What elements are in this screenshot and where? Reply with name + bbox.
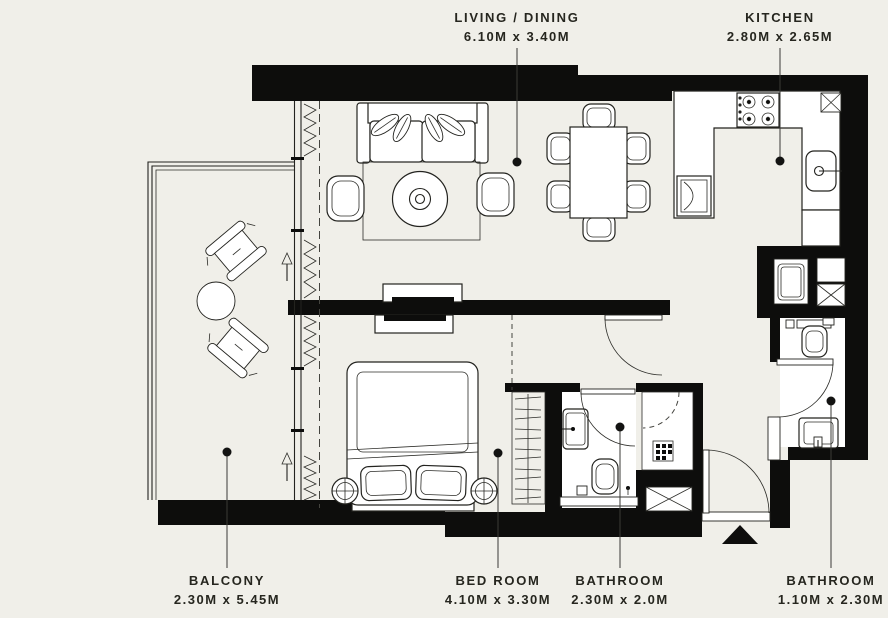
room-dimensions: 2.30M x 2.0M [571,590,669,609]
door-swing [706,450,769,513]
leader-dot [513,158,522,167]
oven-icon [677,176,711,216]
room-dimensions: 4.10M x 3.30M [445,590,551,609]
coffee-table [393,172,448,227]
bed [347,362,478,511]
room-name: BATHROOM [571,571,669,590]
room-label-living-dining: LIVING / DINING 6.10M x 3.40M [454,8,579,46]
wardrobe-hangers [512,392,545,504]
leader-dot [223,448,232,457]
room-label-kitchen: KITCHEN 2.80M x 2.65M [727,8,833,46]
room-label-bathroom-ensuite: BATHROOM 2.30M x 2.0M [571,571,669,609]
room-dimensions: 1.10M x 2.30M [778,590,884,609]
room-name: BED ROOM [445,571,551,590]
walls [158,65,868,537]
balcony-table [197,282,235,320]
leader-dot [616,423,625,432]
balcony-chair [199,215,273,287]
direction-arrow-icon [282,453,292,481]
tv-console-bedroom [375,315,453,333]
sofa [357,103,488,163]
wall-frame [768,417,780,460]
leader-dot [494,449,503,458]
room-dimensions: 6.10M x 3.40M [454,27,579,46]
service-shaft-icon [646,487,692,511]
room-name: BALCONY [174,571,280,590]
service-shaft-icon [817,284,845,306]
leader-dot [827,397,836,406]
storage-box [817,258,845,282]
bedside-table [471,478,497,504]
room-dimensions: 2.80M x 2.65M [727,27,833,46]
dining-table [570,127,627,218]
room-name: KITCHEN [727,8,833,27]
entrance [702,450,770,544]
room-label-bedroom: BED ROOM 4.10M x 3.30M [445,571,551,609]
room-label-bathroom-guest: BATHROOM 1.10M x 2.30M [778,571,884,609]
pillow [415,465,466,501]
service-shaft-icon [821,93,841,112]
tv-console-living [383,284,462,303]
washing-machine-icon [774,259,808,304]
floor-plan-page: LIVING / DINING 6.10M x 3.40M KITCHEN 2.… [0,0,888,618]
shower-floor [642,392,693,470]
balcony-railing [148,162,294,500]
floor-plan-drawing [0,0,888,618]
room-dimensions: 2.30M x 5.45M [174,590,280,609]
wash-basin-icon [799,418,838,449]
door-leaf [703,450,709,513]
wash-basin-icon [562,409,588,449]
dining-set [547,104,650,241]
threshold [702,512,770,521]
bedside-table [332,478,358,504]
armchair-right [477,173,514,216]
direction-arrow-icon [282,253,292,281]
room-label-balcony: BALCONY 2.30M x 5.45M [174,571,280,609]
room-name: LIVING / DINING [454,8,579,27]
pillow [360,465,411,501]
stove-icon [737,93,779,127]
bedroom-door-swing [605,315,662,375]
leader-dot [776,157,785,166]
balcony-chair [201,312,275,384]
room-name: BATHROOM [778,571,884,590]
entrance-marker-icon [722,525,758,544]
armchair-left [327,176,364,221]
